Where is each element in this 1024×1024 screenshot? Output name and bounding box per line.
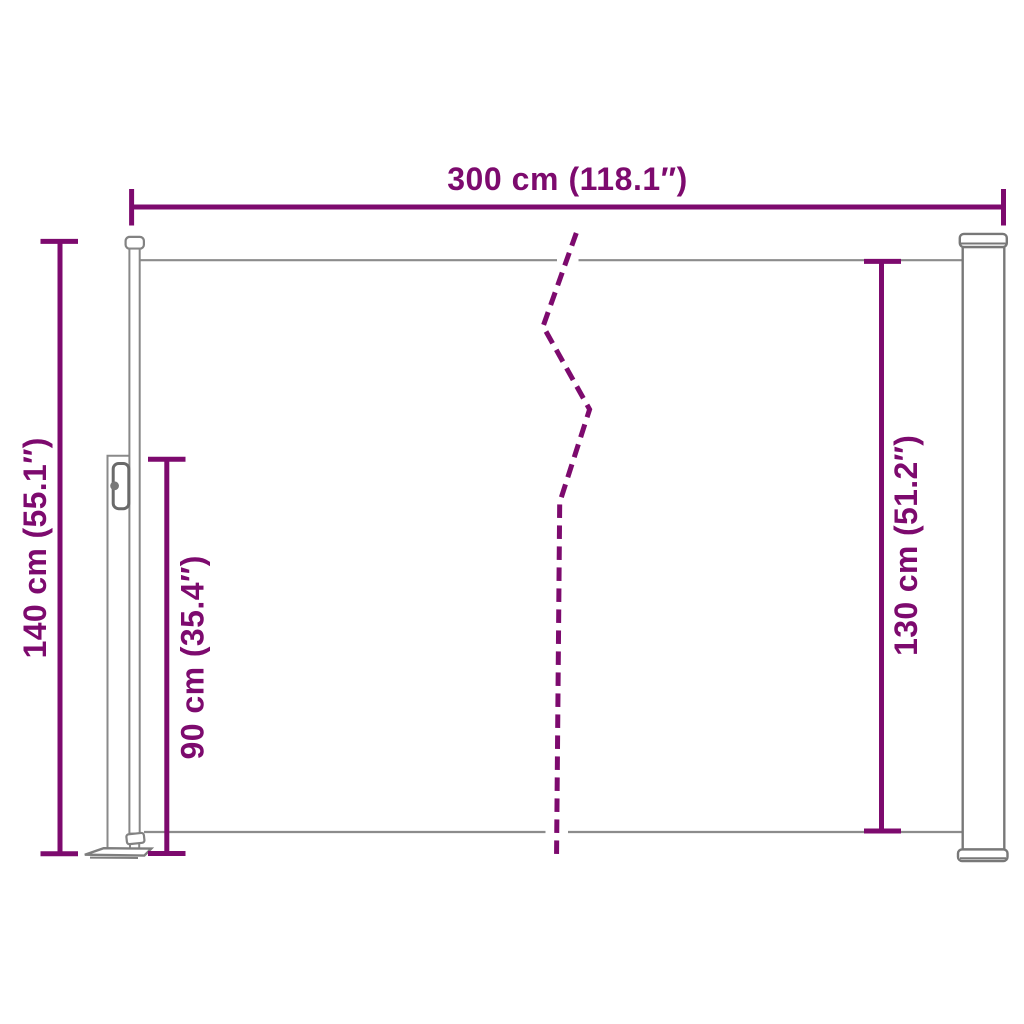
svg-text:90 cm (35.4″): 90 cm (35.4″) <box>175 555 211 759</box>
svg-text:130 cm (51.2″): 130 cm (51.2″) <box>888 435 924 656</box>
svg-text:140 cm (55.1″): 140 cm (55.1″) <box>17 437 53 658</box>
svg-text:300 cm (118.1″): 300 cm (118.1″) <box>447 161 688 197</box>
